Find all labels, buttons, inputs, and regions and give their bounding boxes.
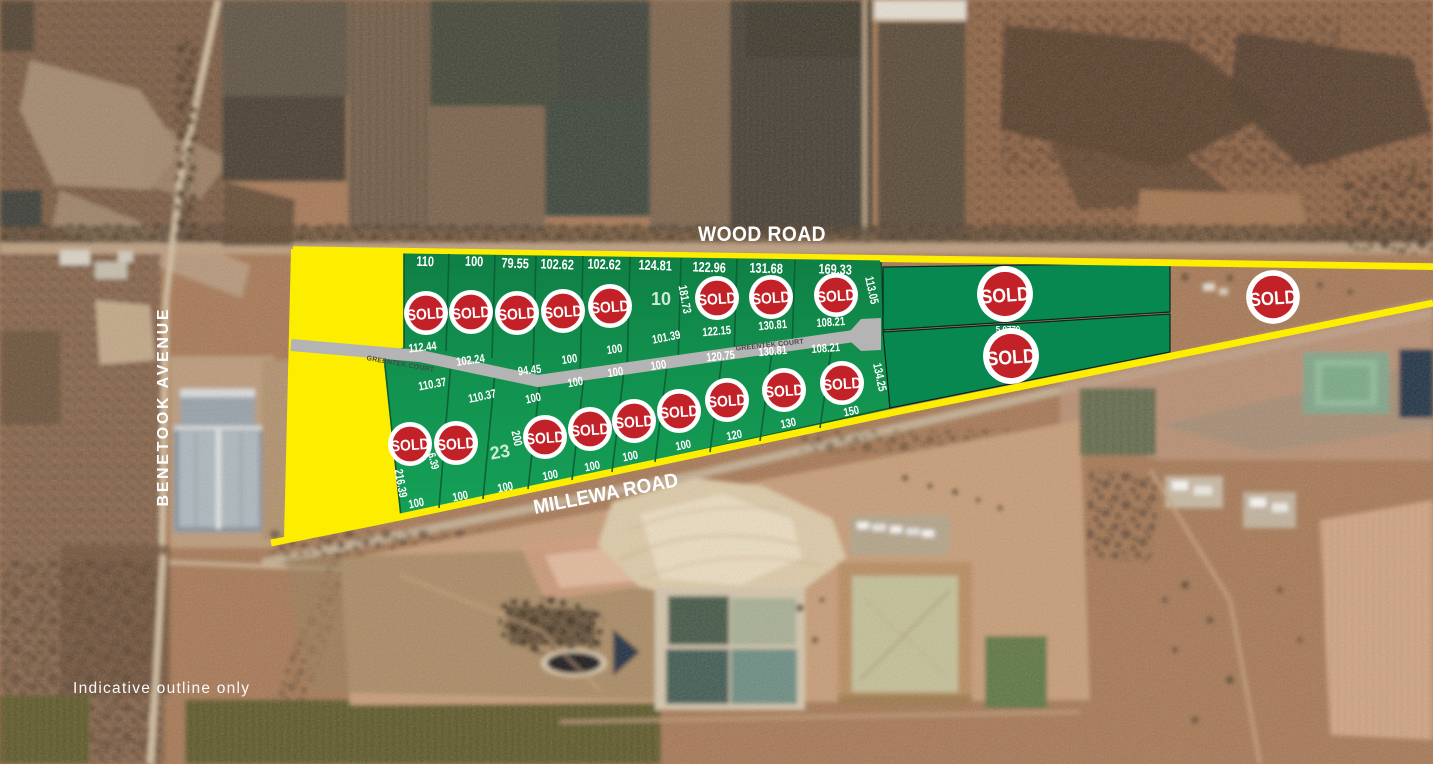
svg-text:122.15: 122.15 [702, 324, 732, 340]
svg-text:124.81: 124.81 [638, 257, 672, 274]
svg-text:131.68: 131.68 [749, 260, 783, 277]
svg-text:102.62: 102.62 [540, 256, 574, 273]
svg-text:Indicative outline only: Indicative outline only [73, 680, 249, 697]
svg-text:79.55: 79.55 [501, 255, 529, 272]
svg-text:WOOD ROAD: WOOD ROAD [698, 223, 826, 246]
svg-text:100: 100 [606, 342, 623, 357]
svg-text:130.81: 130.81 [758, 344, 788, 360]
svg-text:130.81: 130.81 [758, 318, 788, 334]
svg-text:100: 100 [567, 375, 585, 391]
svg-text:100: 100 [650, 358, 668, 374]
svg-text:102.62: 102.62 [587, 256, 621, 273]
svg-text:94.45: 94.45 [517, 363, 542, 379]
svg-text:100: 100 [561, 352, 578, 367]
svg-text:100: 100 [607, 365, 625, 381]
svg-text:122.96: 122.96 [692, 259, 726, 276]
svg-text:108.21: 108.21 [816, 315, 845, 330]
svg-text:108.21: 108.21 [811, 341, 840, 356]
svg-text:BENETOOK AVENUE: BENETOOK AVENUE [155, 309, 172, 506]
svg-text:10: 10 [651, 289, 671, 309]
svg-text:23: 23 [488, 440, 511, 463]
svg-text:110: 110 [416, 253, 434, 269]
svg-text:100: 100 [465, 253, 484, 269]
